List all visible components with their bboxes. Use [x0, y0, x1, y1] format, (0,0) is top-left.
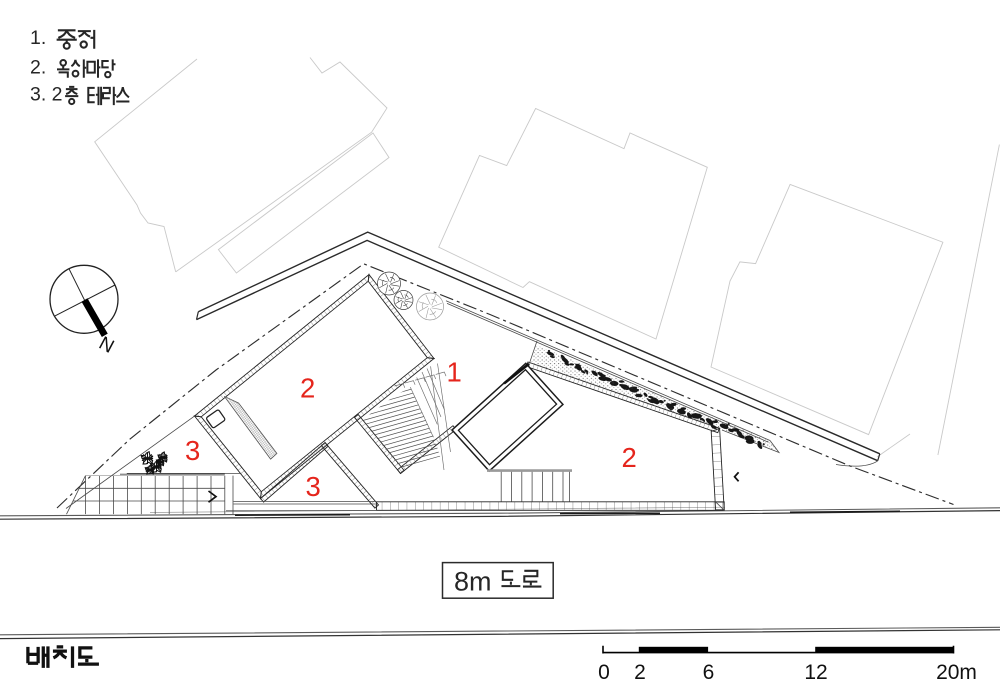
svg-text:20m: 20m	[936, 661, 977, 684]
svg-text:3: 3	[306, 471, 321, 502]
svg-text:0: 0	[598, 661, 610, 684]
svg-text:2: 2	[300, 372, 315, 403]
svg-text:12: 12	[804, 661, 827, 684]
svg-text:2.: 2.	[30, 56, 46, 78]
svg-text:8m: 8m	[454, 567, 492, 597]
svg-text:6: 6	[703, 661, 715, 684]
svg-text:1: 1	[447, 356, 462, 387]
svg-text:3: 3	[185, 435, 200, 466]
svg-text:2: 2	[622, 442, 637, 473]
svg-text:1.: 1.	[30, 27, 46, 49]
svg-text:2: 2	[634, 661, 646, 684]
svg-text:3. 2: 3. 2	[30, 84, 63, 106]
